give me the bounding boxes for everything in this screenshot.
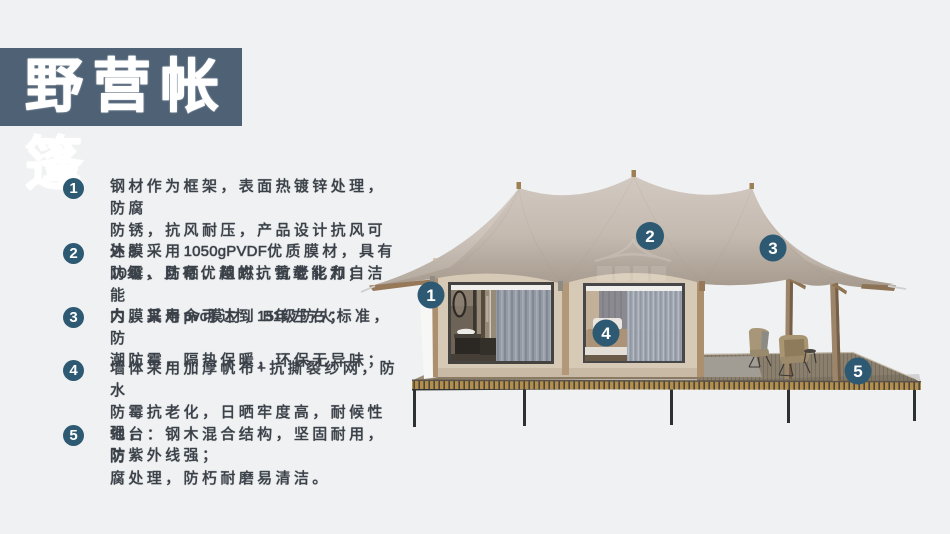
svg-text:5: 5 [853, 362, 862, 381]
svg-text:4: 4 [601, 324, 611, 343]
svg-text:1: 1 [426, 286, 435, 305]
svg-text:2: 2 [645, 227, 654, 246]
svg-text:3: 3 [768, 239, 777, 258]
